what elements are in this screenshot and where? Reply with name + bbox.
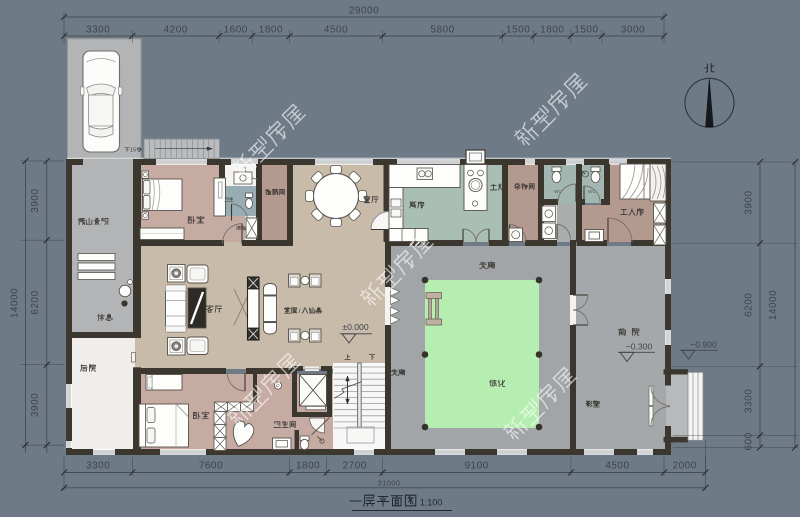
svg-text:1600: 1600 [224, 25, 248, 36]
svg-text:4200: 4200 [164, 25, 188, 36]
svg-text:2700: 2700 [343, 461, 367, 472]
svg-text:3000: 3000 [621, 25, 645, 36]
svg-text:−0.300: −0.300 [626, 342, 653, 352]
svg-text:3300: 3300 [86, 461, 110, 472]
svg-text:29000: 29000 [349, 6, 379, 17]
svg-text:WC: WC [554, 189, 562, 194]
svg-text:4500: 4500 [324, 25, 348, 36]
svg-text:31000: 31000 [378, 479, 401, 488]
svg-text:6200: 6200 [30, 290, 41, 314]
svg-text:3300: 3300 [744, 389, 755, 413]
svg-text:1800: 1800 [296, 461, 320, 472]
svg-text:6200: 6200 [744, 293, 755, 317]
svg-text:1800: 1800 [259, 25, 283, 36]
svg-text:5: 5 [133, 147, 136, 153]
svg-text:/: / [299, 308, 301, 315]
svg-text:1800: 1800 [540, 25, 564, 36]
svg-text:5800: 5800 [430, 25, 454, 36]
svg-text:±0.000: ±0.000 [342, 322, 368, 332]
svg-text:4500: 4500 [605, 461, 629, 472]
svg-text:3900: 3900 [30, 188, 41, 212]
svg-text:3900: 3900 [744, 190, 755, 214]
svg-text:2000: 2000 [673, 461, 697, 472]
svg-text:9100: 9100 [465, 461, 489, 472]
svg-text:14000: 14000 [10, 288, 21, 318]
svg-text:−0.900: −0.900 [690, 340, 717, 350]
svg-text:7600: 7600 [199, 461, 223, 472]
svg-text:3300: 3300 [86, 25, 110, 36]
svg-text:14000: 14000 [768, 290, 779, 320]
svg-text:WC: WC [588, 189, 596, 194]
svg-text:3900: 3900 [30, 393, 41, 417]
svg-text:1500: 1500 [574, 25, 598, 36]
svg-text:1:100: 1:100 [420, 498, 443, 508]
svg-text:1500: 1500 [506, 25, 530, 36]
